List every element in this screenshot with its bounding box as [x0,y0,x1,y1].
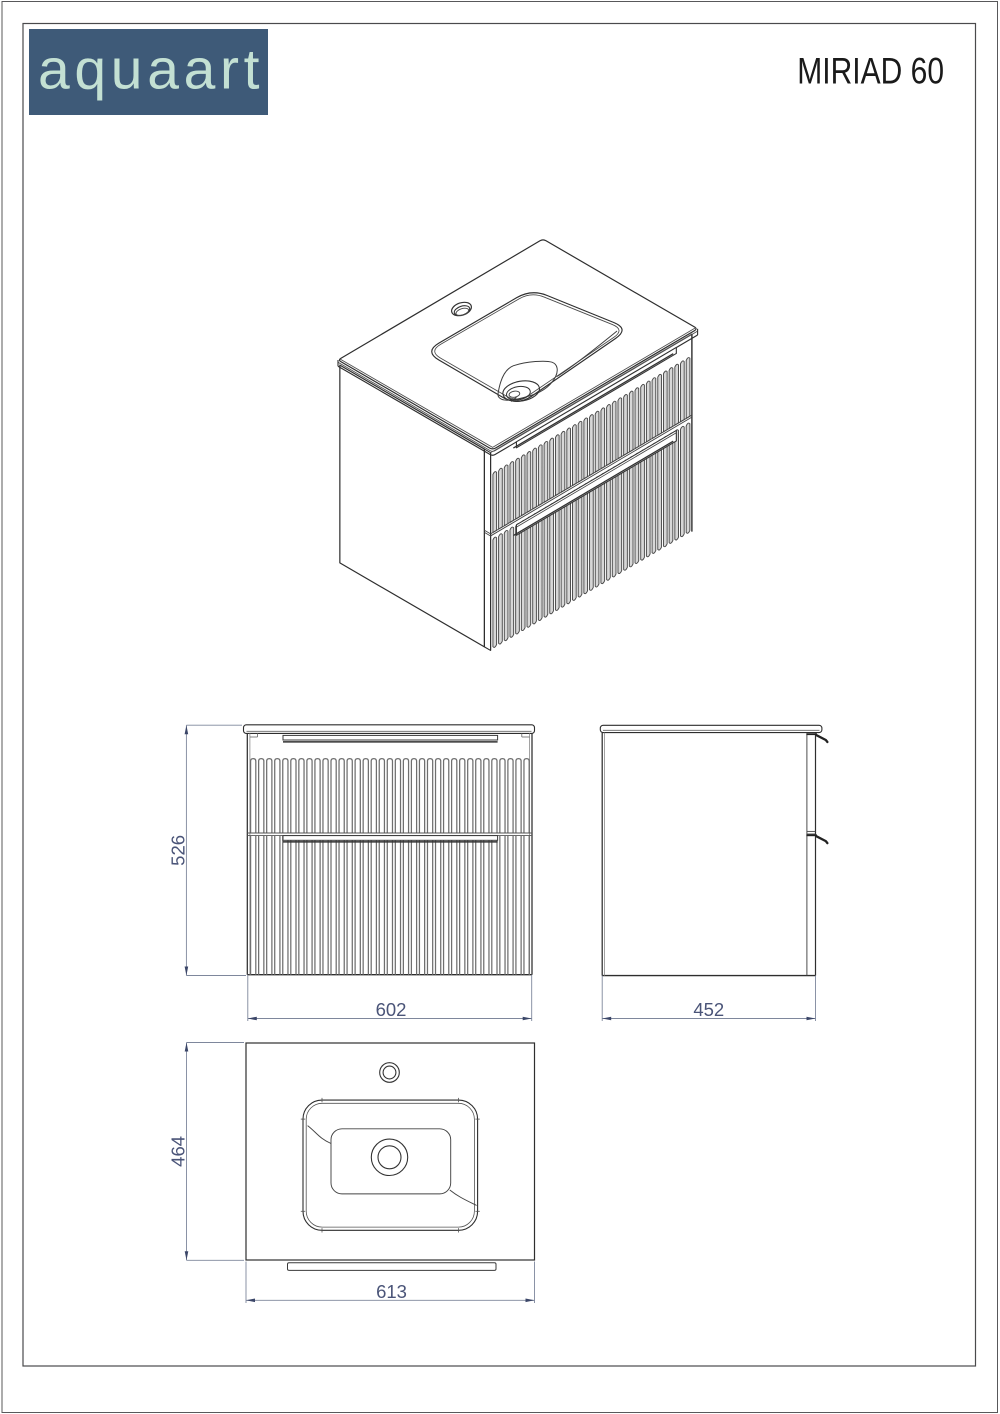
svg-text:aquaart: aquaart [38,38,264,102]
svg-text:452: 452 [693,999,724,1020]
svg-text:526: 526 [167,835,188,866]
svg-text:602: 602 [376,999,407,1020]
svg-text:613: 613 [376,1281,407,1302]
svg-text:MIRIAD 60: MIRIAD 60 [797,52,944,92]
svg-text:464: 464 [167,1136,188,1167]
